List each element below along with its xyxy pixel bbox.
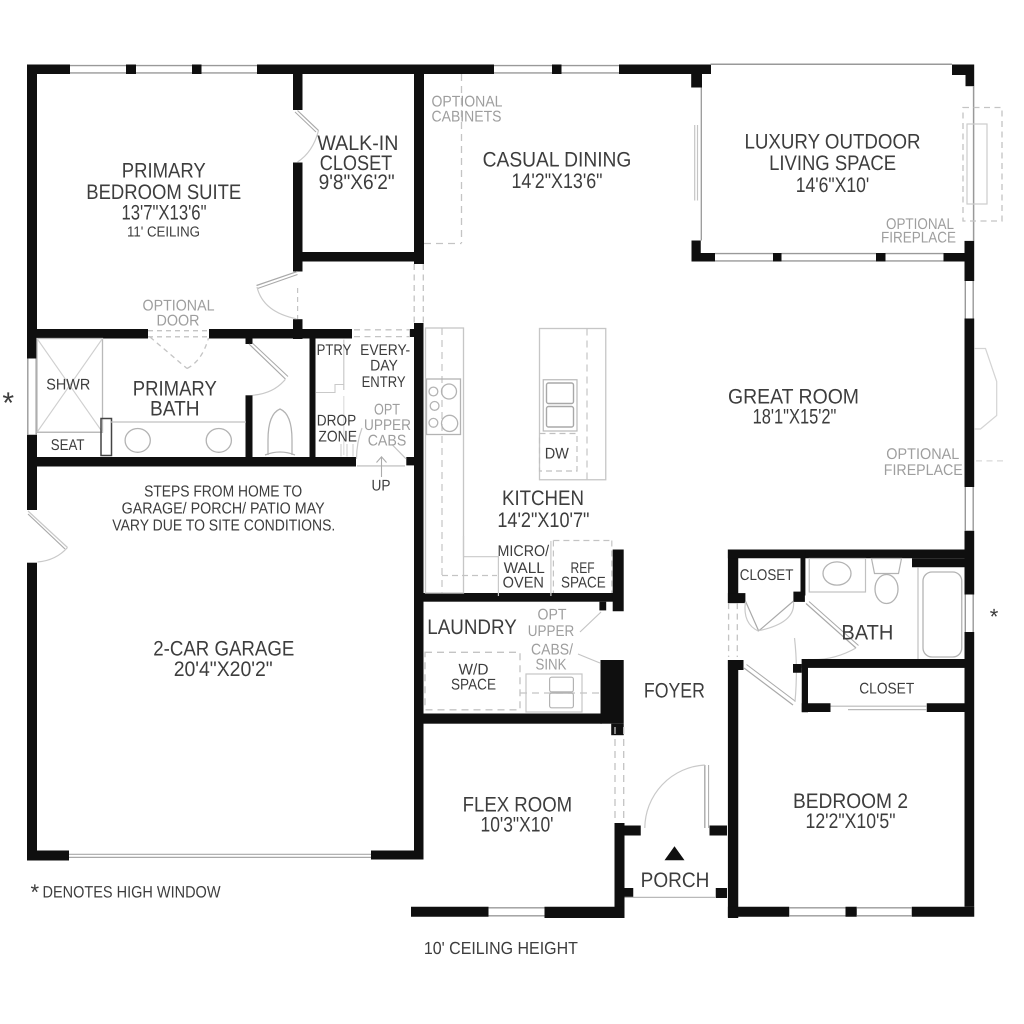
svg-text:*: * bbox=[2, 387, 14, 420]
svg-text:*: * bbox=[31, 880, 40, 905]
svg-text:BATH: BATH bbox=[841, 622, 893, 645]
svg-text:18'1"X15'2": 18'1"X15'2" bbox=[753, 406, 837, 429]
svg-text:UPPER: UPPER bbox=[364, 417, 411, 434]
svg-text:CABINETS: CABINETS bbox=[432, 109, 502, 126]
svg-text:GARAGE/ PORCH/ PATIO MAY: GARAGE/ PORCH/ PATIO MAY bbox=[122, 501, 325, 518]
svg-text:CABS: CABS bbox=[368, 433, 407, 450]
svg-text:UPPER: UPPER bbox=[528, 623, 575, 640]
svg-text:14'2"X10'7": 14'2"X10'7" bbox=[497, 509, 589, 532]
svg-text:FIREPLACE: FIREPLACE bbox=[884, 462, 963, 479]
svg-text:LIVING SPACE: LIVING SPACE bbox=[769, 152, 896, 175]
svg-text:9'8"X6'2": 9'8"X6'2" bbox=[319, 171, 395, 194]
svg-text:CLOSET: CLOSET bbox=[740, 567, 794, 584]
svg-text:SHWR: SHWR bbox=[46, 376, 90, 393]
svg-text:FIREPLACE: FIREPLACE bbox=[881, 230, 956, 247]
svg-text:14'2"X13'6": 14'2"X13'6" bbox=[512, 170, 603, 193]
svg-text:14'6"X10': 14'6"X10' bbox=[796, 174, 870, 197]
svg-text:OPTIONAL: OPTIONAL bbox=[886, 446, 959, 463]
svg-text:VARY DUE TO SITE CONDITIONS.: VARY DUE TO SITE CONDITIONS. bbox=[112, 518, 335, 535]
svg-text:ENTRY: ENTRY bbox=[362, 374, 406, 391]
svg-text:CLOSET: CLOSET bbox=[859, 680, 914, 697]
svg-text:SPACE: SPACE bbox=[561, 575, 606, 592]
svg-text:PTRY: PTRY bbox=[317, 342, 352, 359]
svg-text:OVEN: OVEN bbox=[503, 575, 544, 592]
svg-text:DOOR: DOOR bbox=[157, 312, 200, 329]
svg-text:BATH: BATH bbox=[150, 398, 200, 421]
svg-text:PORCH: PORCH bbox=[641, 869, 710, 892]
svg-text:DROP: DROP bbox=[317, 412, 356, 429]
svg-text:10'3"X10': 10'3"X10' bbox=[481, 814, 554, 837]
svg-text:*: * bbox=[990, 604, 999, 629]
svg-text:SINK: SINK bbox=[536, 657, 568, 674]
svg-text:OPT: OPT bbox=[538, 607, 567, 624]
svg-text:DAY: DAY bbox=[370, 358, 398, 375]
svg-text:KITCHEN: KITCHEN bbox=[502, 487, 584, 510]
svg-text:PRIMARY: PRIMARY bbox=[122, 160, 206, 183]
svg-text:DENOTES HIGH WINDOW: DENOTES HIGH WINDOW bbox=[43, 884, 221, 902]
svg-text:SEAT: SEAT bbox=[51, 437, 85, 454]
svg-text:UP: UP bbox=[372, 478, 391, 495]
svg-text:FOYER: FOYER bbox=[644, 679, 705, 702]
svg-text:LAUNDRY: LAUNDRY bbox=[427, 616, 517, 639]
svg-text:SPACE: SPACE bbox=[451, 677, 496, 694]
svg-text:ZONE: ZONE bbox=[318, 429, 357, 446]
svg-text:LUXURY OUTDOOR: LUXURY OUTDOOR bbox=[745, 131, 921, 154]
svg-text:12'2"X10'5": 12'2"X10'5" bbox=[806, 810, 896, 833]
svg-text:CASUAL DINING: CASUAL DINING bbox=[483, 149, 632, 172]
svg-text:DW: DW bbox=[545, 446, 570, 463]
svg-text:11' CEILING: 11' CEILING bbox=[127, 224, 200, 240]
svg-text:10' CEILING HEIGHT: 10' CEILING HEIGHT bbox=[424, 938, 578, 958]
svg-text:13'7"X13'6": 13'7"X13'6" bbox=[122, 201, 207, 224]
svg-text:STEPS FROM HOME TO: STEPS FROM HOME TO bbox=[144, 483, 302, 500]
svg-text:20'4"X20'2": 20'4"X20'2" bbox=[174, 658, 273, 681]
svg-text:MICRO/: MICRO/ bbox=[498, 543, 550, 560]
